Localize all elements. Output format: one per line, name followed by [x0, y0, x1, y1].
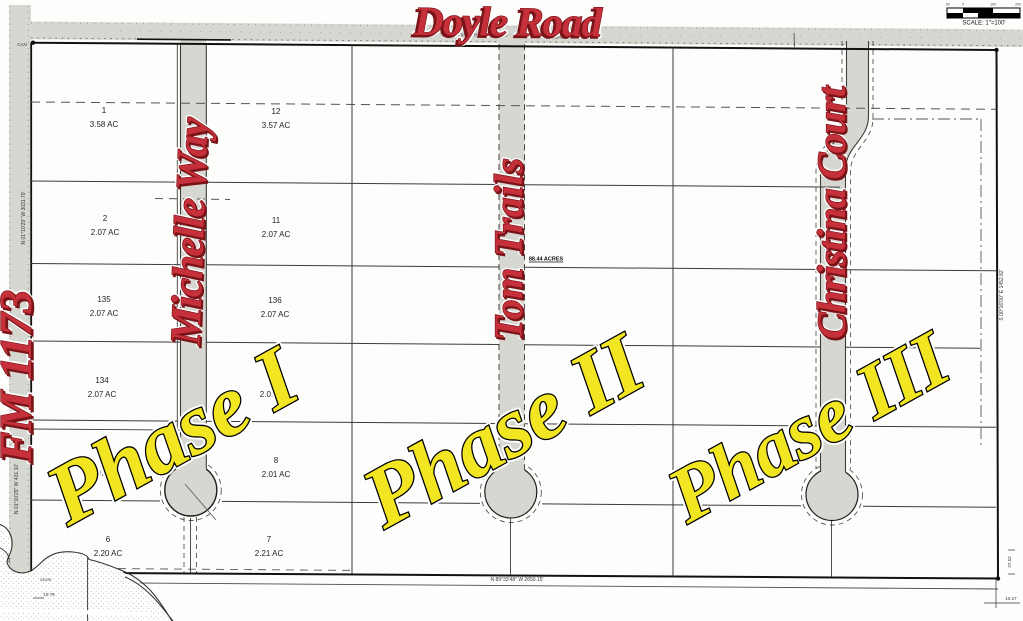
svg-text:3.57 AC: 3.57 AC [262, 121, 291, 130]
svg-text:8: 8 [274, 456, 279, 465]
svg-text:EDGE: EDGE [40, 577, 52, 582]
svg-text:2.21 AC: 2.21 AC [255, 549, 284, 558]
svg-text:27.52: 27.52 [1007, 556, 1012, 568]
svg-text:N 89°33'48" W 2650.15': N 89°33'48" W 2650.15' [491, 577, 544, 583]
svg-text:Michelle Way: Michelle Way [163, 115, 218, 346]
svg-text:2.07 AC: 2.07 AC [90, 309, 119, 318]
svg-text:100: 100 [990, 3, 996, 7]
svg-text:S 00°16'00" E 1452.82': S 00°16'00" E 1452.82' [999, 269, 1005, 320]
svg-text:SCALE: 1"=100': SCALE: 1"=100' [962, 21, 1005, 27]
svg-text:2.01 AC: 2.01 AC [262, 470, 291, 479]
svg-text:12: 12 [272, 107, 281, 116]
svg-text:6: 6 [106, 535, 111, 544]
svg-text:136: 136 [268, 296, 282, 305]
svg-text:2.20 AC: 2.20 AC [94, 549, 123, 558]
svg-text:2.07 AC: 2.07 AC [91, 228, 120, 237]
svg-text:3.58 AC: 3.58 AC [90, 120, 119, 129]
svg-text:7: 7 [267, 535, 272, 544]
svg-text:135: 135 [97, 295, 111, 304]
svg-text:N 01°10'29" W 3031.70': N 01°10'29" W 3031.70' [21, 191, 27, 244]
svg-text:Tom Trails: Tom Trails [486, 157, 531, 340]
svg-text:10.79: 10.79 [43, 592, 55, 597]
svg-text:50: 50 [946, 3, 950, 7]
svg-text:N 01°10'29" W 431.10': N 01°10'29" W 431.10' [14, 464, 20, 514]
svg-text:2.07 AC: 2.07 AC [261, 310, 290, 319]
svg-text:134: 134 [95, 376, 109, 385]
svg-text:Doyle Road: Doyle Road [413, 0, 603, 45]
svg-text:11: 11 [272, 216, 281, 225]
svg-text:FM 1173: FM 1173 [0, 290, 41, 464]
svg-text:Christina Court: Christina Court [809, 84, 854, 339]
svg-text:2: 2 [103, 214, 108, 223]
svg-text:10.27: 10.27 [1005, 596, 1017, 601]
svg-text:200: 200 [1015, 3, 1021, 7]
svg-text:0: 0 [962, 3, 964, 7]
svg-text:1: 1 [102, 106, 107, 115]
svg-text:2.07 AC: 2.07 AC [262, 230, 291, 239]
svg-text:CAN: CAN [17, 42, 27, 47]
svg-text:2.07 AC: 2.07 AC [88, 390, 117, 399]
